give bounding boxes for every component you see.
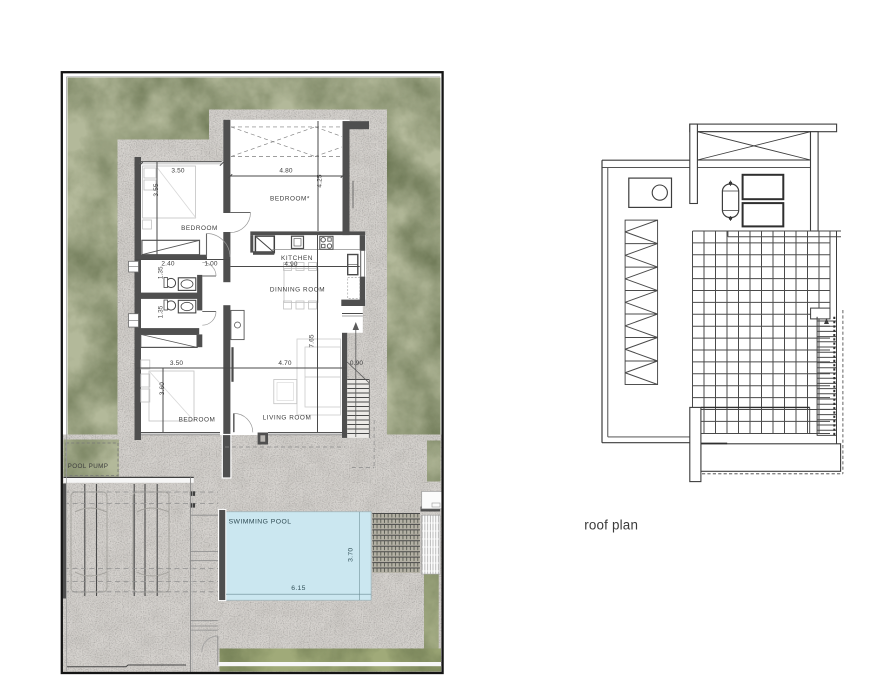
- svg-text:DINNING ROOM: DINNING ROOM: [270, 286, 325, 293]
- svg-text:4.25: 4.25: [317, 174, 324, 187]
- svg-text:BEDROOM*: BEDROOM*: [270, 195, 310, 202]
- svg-text:3.70: 3.70: [348, 547, 355, 561]
- svg-text:4.70: 4.70: [278, 360, 291, 367]
- svg-text:6.15: 6.15: [291, 585, 305, 592]
- svg-text:roof plan: roof plan: [584, 518, 638, 533]
- svg-text:4.90: 4.90: [284, 261, 297, 268]
- svg-text:3.50: 3.50: [170, 360, 183, 367]
- svg-text:2.40: 2.40: [161, 260, 174, 267]
- svg-text:7.65: 7.65: [309, 334, 316, 347]
- svg-text:BEDROOM: BEDROOM: [181, 225, 218, 232]
- svg-text:3.50: 3.50: [171, 167, 184, 174]
- svg-text:1.00: 1.00: [204, 260, 217, 267]
- svg-text:0.90: 0.90: [350, 360, 363, 367]
- svg-text:4.80: 4.80: [279, 167, 292, 174]
- svg-text:3.55: 3.55: [153, 183, 160, 196]
- svg-text:SWIMMING POOL: SWIMMING POOL: [229, 519, 292, 526]
- svg-text:1.35: 1.35: [158, 305, 165, 318]
- svg-text:POOL PUMP: POOL PUMP: [68, 463, 109, 470]
- svg-text:BEDROOM: BEDROOM: [179, 416, 216, 423]
- svg-text:LIVING ROOM: LIVING ROOM: [263, 414, 312, 421]
- svg-text:1.35: 1.35: [158, 266, 165, 279]
- svg-text:3.60: 3.60: [159, 382, 166, 395]
